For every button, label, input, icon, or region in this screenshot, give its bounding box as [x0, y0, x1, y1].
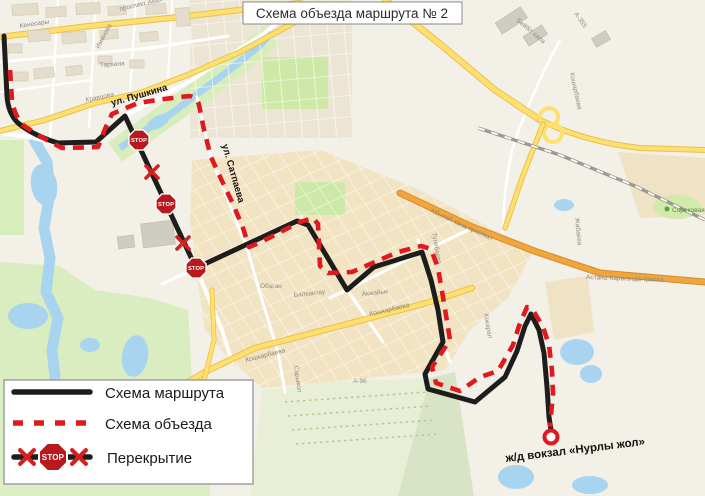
stop-sign	[186, 258, 206, 278]
legend: Схема маршрута Схема объезда Перекрытие	[4, 380, 253, 484]
legend-detour-label: Схема объезда	[105, 416, 212, 433]
page-title: Схема объезда маршрута № 2	[256, 6, 448, 21]
route-end-marker	[545, 431, 558, 444]
street-label: Обаган	[260, 282, 282, 290]
detour-scheme-map: STOP	[0, 0, 705, 496]
street-label: Сороковая	[672, 207, 705, 214]
garden-poi-icon	[665, 207, 670, 212]
map-canvas[interactable]: STOP	[0, 0, 705, 496]
legend-closure-label: Перекрытие	[107, 450, 192, 467]
legend-stop-sign	[39, 443, 67, 471]
street-label: А-96	[353, 378, 367, 385]
legend-route-label: Схема маршрута	[105, 385, 225, 402]
title-box: Схема объезда маршрута № 2	[243, 2, 462, 24]
stop-sign	[156, 194, 176, 214]
stop-sign	[129, 130, 149, 150]
